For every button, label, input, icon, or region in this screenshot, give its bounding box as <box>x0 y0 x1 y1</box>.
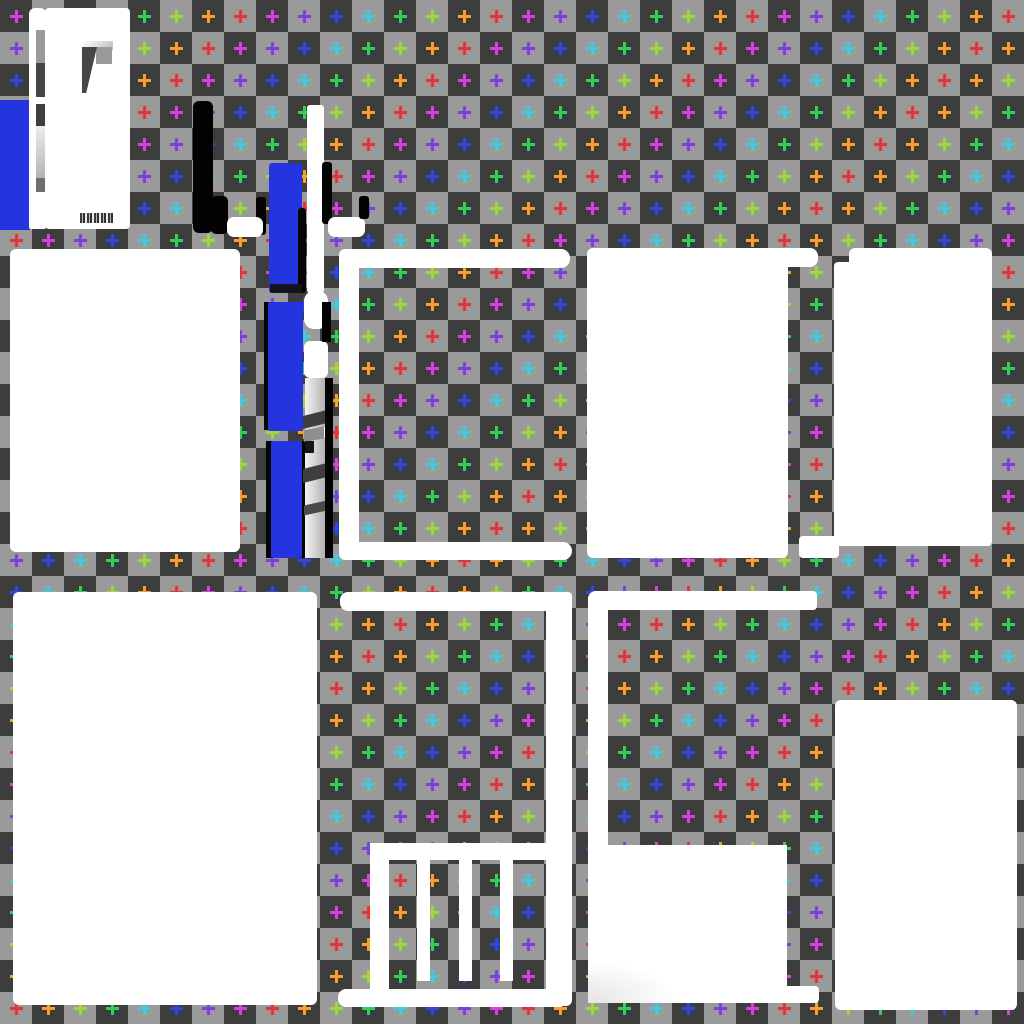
plus-marker <box>522 778 535 791</box>
plus-marker <box>586 170 599 183</box>
plus-marker <box>970 42 983 55</box>
plus-marker <box>394 522 407 535</box>
plus-marker <box>426 458 439 471</box>
frame2-top-bar <box>340 592 572 611</box>
plus-marker <box>842 234 855 247</box>
plus-marker <box>426 778 439 791</box>
plus-marker <box>778 106 791 119</box>
plus-marker <box>810 458 823 471</box>
plus-marker <box>618 170 631 183</box>
plus-marker <box>234 138 247 151</box>
plus-marker <box>842 42 855 55</box>
plus-marker <box>138 554 151 567</box>
plus-marker <box>298 74 311 87</box>
plus-marker <box>554 106 567 119</box>
plus-marker <box>746 682 759 695</box>
plus-marker <box>874 170 887 183</box>
plus-marker <box>362 298 375 311</box>
plus-marker <box>938 682 951 695</box>
plus-marker <box>490 522 503 535</box>
plus-marker <box>10 554 23 567</box>
plus-marker <box>458 74 471 87</box>
gray-stack-black-notch <box>305 441 314 453</box>
frame1-left-bar <box>339 249 359 559</box>
plus-marker <box>458 490 471 503</box>
plus-marker <box>1002 490 1015 503</box>
plus-marker <box>842 650 855 663</box>
plus-marker <box>362 74 375 87</box>
plus-marker <box>874 682 887 695</box>
plus-marker <box>906 106 919 119</box>
plus-marker <box>394 74 407 87</box>
plus-marker <box>426 714 439 727</box>
plus-marker <box>170 10 183 23</box>
rect-bottom-mid <box>588 845 787 1003</box>
plus-marker <box>810 490 823 503</box>
rect-mid-center <box>587 248 788 558</box>
plus-marker <box>1002 394 1015 407</box>
white-rounded-h <box>304 341 328 378</box>
plus-marker <box>682 1002 695 1015</box>
plus-marker <box>682 618 695 631</box>
frame3-top-bar <box>588 591 817 610</box>
plus-marker <box>746 138 759 151</box>
plus-marker <box>394 714 407 727</box>
plus-marker <box>522 138 535 151</box>
plus-marker <box>394 778 407 791</box>
plus-marker <box>650 778 663 791</box>
plus-marker <box>586 234 599 247</box>
plus-marker <box>874 138 887 151</box>
plus-marker <box>842 682 855 695</box>
plus-marker <box>810 10 823 23</box>
plus-marker <box>426 10 439 23</box>
plus-marker <box>746 746 759 759</box>
plus-marker <box>522 522 535 535</box>
plus-marker <box>490 42 503 55</box>
plus-marker <box>810 42 823 55</box>
plus-marker <box>138 138 151 151</box>
plus-marker <box>522 10 535 23</box>
plus-marker <box>522 938 535 951</box>
plus-marker <box>842 170 855 183</box>
plus-marker <box>618 10 631 23</box>
plus-marker <box>714 10 727 23</box>
flag-gray-elbow <box>96 47 112 64</box>
plus-marker <box>1002 138 1015 151</box>
blue-segment-1-shadow <box>270 284 302 293</box>
plus-marker <box>490 746 503 759</box>
plus-marker <box>458 810 471 823</box>
plus-marker <box>714 650 727 663</box>
plus-marker <box>874 650 887 663</box>
plus-marker <box>682 650 695 663</box>
plus-marker <box>394 394 407 407</box>
plus-marker <box>810 298 823 311</box>
plus-marker <box>778 714 791 727</box>
plus-marker <box>682 778 695 791</box>
plus-marker <box>618 138 631 151</box>
plus-marker <box>522 746 535 759</box>
plus-marker <box>714 618 727 631</box>
plus-marker <box>650 202 663 215</box>
plus-marker <box>874 74 887 87</box>
plus-marker <box>522 106 535 119</box>
plus-marker <box>842 202 855 215</box>
plus-marker <box>1002 522 1015 535</box>
plus-marker <box>330 682 343 695</box>
plus-marker <box>394 170 407 183</box>
plus-marker <box>426 522 439 535</box>
plus-marker <box>234 74 247 87</box>
plus-marker <box>522 298 535 311</box>
plus-marker <box>458 618 471 631</box>
plus-marker <box>522 682 535 695</box>
plus-marker <box>682 234 695 247</box>
plus-marker <box>394 650 407 663</box>
plus-marker <box>810 618 823 631</box>
plus-marker <box>810 362 823 375</box>
plus-marker <box>906 138 919 151</box>
plus-marker <box>522 170 535 183</box>
plus-marker <box>138 234 151 247</box>
plus-marker <box>970 650 983 663</box>
plus-marker <box>746 778 759 791</box>
plus-marker <box>106 234 119 247</box>
plus-marker <box>1002 682 1015 695</box>
plus-marker <box>842 586 855 599</box>
plus-marker <box>810 234 823 247</box>
plus-marker <box>298 42 311 55</box>
plus-marker <box>970 10 983 23</box>
plus-marker <box>714 74 727 87</box>
plus-marker <box>458 202 471 215</box>
plus-marker <box>650 234 663 247</box>
plus-marker <box>394 906 407 919</box>
plus-marker <box>234 554 247 567</box>
plus-marker <box>426 170 439 183</box>
plus-marker <box>138 202 151 215</box>
plus-marker <box>426 234 439 247</box>
plus-marker <box>330 714 343 727</box>
black-bar-f <box>322 162 332 224</box>
plus-marker <box>1002 106 1015 119</box>
plus-marker <box>1002 362 1015 375</box>
plus-marker <box>522 202 535 215</box>
plus-marker <box>746 618 759 631</box>
plus-marker <box>618 42 631 55</box>
plus-marker <box>1002 42 1015 55</box>
plus-marker <box>458 714 471 727</box>
plus-marker <box>554 458 567 471</box>
plus-marker <box>522 330 535 343</box>
plus-marker <box>554 138 567 151</box>
plus-marker <box>682 714 695 727</box>
plus-marker <box>394 970 407 983</box>
plus-marker <box>810 202 823 215</box>
plus-marker <box>682 106 695 119</box>
plus-marker <box>810 522 823 535</box>
plus-marker <box>426 426 439 439</box>
plus-marker <box>490 170 503 183</box>
plus-marker <box>362 682 375 695</box>
plus-marker <box>426 682 439 695</box>
plus-marker <box>650 1002 663 1015</box>
plus-marker <box>810 266 823 279</box>
plus-marker <box>970 170 983 183</box>
plus-marker <box>714 682 727 695</box>
plus-marker <box>842 10 855 23</box>
plus-marker <box>362 778 375 791</box>
plus-marker <box>522 874 535 887</box>
plus-marker <box>330 842 343 855</box>
plus-marker <box>714 234 727 247</box>
plus-marker <box>650 74 663 87</box>
plus-marker <box>618 618 631 631</box>
plus-marker <box>906 586 919 599</box>
white-bar-j <box>328 217 365 237</box>
plus-marker <box>170 42 183 55</box>
plus-marker <box>522 970 535 983</box>
plus-marker <box>586 138 599 151</box>
plus-marker <box>362 10 375 23</box>
plus-marker <box>714 746 727 759</box>
frame2-tooth-3 <box>500 857 513 981</box>
plus-marker <box>970 138 983 151</box>
plus-marker <box>746 42 759 55</box>
plus-marker <box>490 682 503 695</box>
plus-marker <box>362 458 375 471</box>
plus-marker <box>650 138 663 151</box>
plus-marker <box>938 586 951 599</box>
frame2-right-bar <box>546 592 572 1006</box>
plus-marker <box>554 170 567 183</box>
plus-marker <box>810 138 823 151</box>
plus-marker <box>778 650 791 663</box>
plus-marker <box>10 234 23 247</box>
rect-bottom-mid-tab <box>787 986 819 1003</box>
plus-marker <box>778 74 791 87</box>
plus-marker <box>330 906 343 919</box>
plus-marker <box>266 10 279 23</box>
plus-marker <box>650 650 663 663</box>
plus-marker <box>842 138 855 151</box>
plus-marker <box>394 618 407 631</box>
plus-marker <box>650 10 663 23</box>
plus-marker <box>906 682 919 695</box>
plus-marker <box>618 682 631 695</box>
plus-marker <box>522 362 535 375</box>
plus-marker <box>330 778 343 791</box>
plus-marker <box>650 170 663 183</box>
plus-marker <box>682 74 695 87</box>
plus-marker <box>746 650 759 663</box>
plus-marker <box>458 330 471 343</box>
plus-marker <box>170 138 183 151</box>
plus-marker <box>138 106 151 119</box>
plus-marker <box>490 426 503 439</box>
black-edge-right-long <box>325 378 333 558</box>
plus-marker <box>970 618 983 631</box>
plus-marker <box>938 234 951 247</box>
plus-marker <box>490 330 503 343</box>
plus-marker <box>458 138 471 151</box>
plus-marker <box>682 170 695 183</box>
plus-marker <box>778 42 791 55</box>
plus-marker <box>810 106 823 119</box>
plus-marker <box>970 554 983 567</box>
plus-marker <box>874 554 887 567</box>
frame1-top-bar <box>339 249 570 268</box>
plus-marker <box>970 234 983 247</box>
plus-marker <box>330 938 343 951</box>
plus-marker <box>586 10 599 23</box>
plus-marker <box>362 234 375 247</box>
plus-marker <box>778 618 791 631</box>
plus-marker <box>330 970 343 983</box>
plus-marker <box>394 234 407 247</box>
plus-marker <box>874 42 887 55</box>
plus-marker <box>618 810 631 823</box>
plus-marker <box>938 554 951 567</box>
plus-marker <box>874 586 887 599</box>
plus-marker <box>938 138 951 151</box>
plus-marker <box>778 170 791 183</box>
plus-marker <box>842 554 855 567</box>
plus-marker <box>746 714 759 727</box>
plus-marker <box>330 746 343 759</box>
plus-marker <box>426 138 439 151</box>
plus-marker <box>714 810 727 823</box>
plus-marker <box>650 746 663 759</box>
plus-marker <box>906 618 919 631</box>
plus-marker <box>842 618 855 631</box>
plus-marker <box>1002 202 1015 215</box>
plus-marker <box>330 810 343 823</box>
plus-marker <box>426 202 439 215</box>
plus-marker <box>714 1002 727 1015</box>
plus-marker <box>746 74 759 87</box>
plus-marker <box>682 10 695 23</box>
plus-marker <box>842 106 855 119</box>
plus-marker <box>490 490 503 503</box>
plus-marker <box>170 554 183 567</box>
plus-marker <box>170 106 183 119</box>
plus-marker <box>202 554 215 567</box>
plus-marker <box>810 394 823 407</box>
plus-marker <box>1002 266 1015 279</box>
plus-marker <box>874 10 887 23</box>
plus-marker <box>938 42 951 55</box>
plus-marker <box>458 522 471 535</box>
plus-marker <box>682 202 695 215</box>
plus-marker <box>266 138 279 151</box>
plus-marker <box>874 106 887 119</box>
plus-marker <box>394 746 407 759</box>
plus-marker <box>522 810 535 823</box>
plus-marker <box>810 778 823 791</box>
plus-marker <box>682 746 695 759</box>
plus-marker <box>362 330 375 343</box>
plus-marker <box>458 394 471 407</box>
plus-marker <box>938 106 951 119</box>
plus-marker <box>522 234 535 247</box>
plus-marker <box>554 330 567 343</box>
plus-marker <box>74 554 87 567</box>
plus-marker <box>458 234 471 247</box>
plus-marker <box>618 106 631 119</box>
plus-marker <box>586 202 599 215</box>
plus-marker <box>970 106 983 119</box>
plus-marker <box>490 234 503 247</box>
plus-marker <box>522 490 535 503</box>
plus-marker <box>714 778 727 791</box>
plus-marker <box>458 170 471 183</box>
plus-marker <box>810 970 823 983</box>
plus-marker <box>810 170 823 183</box>
plus-marker <box>330 42 343 55</box>
plus-marker <box>714 202 727 215</box>
plus-marker <box>74 234 87 247</box>
plus-marker <box>650 810 663 823</box>
plus-marker <box>938 650 951 663</box>
frame2-left-leg <box>370 843 389 1006</box>
plus-marker <box>618 234 631 247</box>
plus-marker <box>362 426 375 439</box>
plus-marker <box>618 650 631 663</box>
plus-marker <box>746 10 759 23</box>
frame2-bottom-bar <box>338 989 567 1007</box>
plus-marker <box>906 42 919 55</box>
plus-marker <box>970 586 983 599</box>
plus-marker <box>426 330 439 343</box>
plus-marker <box>618 778 631 791</box>
plus-marker <box>266 42 279 55</box>
plus-marker <box>778 138 791 151</box>
plus-marker <box>426 42 439 55</box>
plus-marker <box>234 106 247 119</box>
plus-marker <box>682 810 695 823</box>
plus-marker <box>362 362 375 375</box>
plus-marker <box>458 650 471 663</box>
plus-marker <box>970 682 983 695</box>
plus-marker <box>458 778 471 791</box>
plus-marker <box>522 426 535 439</box>
plus-marker <box>906 554 919 567</box>
plus-marker <box>362 170 375 183</box>
plus-marker <box>170 234 183 247</box>
plus-marker <box>394 458 407 471</box>
plus-marker <box>1002 10 1015 23</box>
plus-marker <box>10 42 23 55</box>
illegible-signature-pixels <box>80 213 113 223</box>
plus-marker <box>970 202 983 215</box>
plus-marker <box>778 202 791 215</box>
plus-marker <box>554 74 567 87</box>
plus-marker <box>362 42 375 55</box>
plus-marker <box>138 170 151 183</box>
plus-marker <box>202 10 215 23</box>
plus-marker <box>490 394 503 407</box>
plus-marker <box>490 714 503 727</box>
black-bar-k <box>359 196 369 219</box>
plus-marker <box>234 170 247 183</box>
plus-marker <box>170 74 183 87</box>
plus-marker <box>522 42 535 55</box>
frame1-bottom-bar <box>339 542 572 560</box>
plus-marker <box>202 234 215 247</box>
plus-marker <box>874 618 887 631</box>
